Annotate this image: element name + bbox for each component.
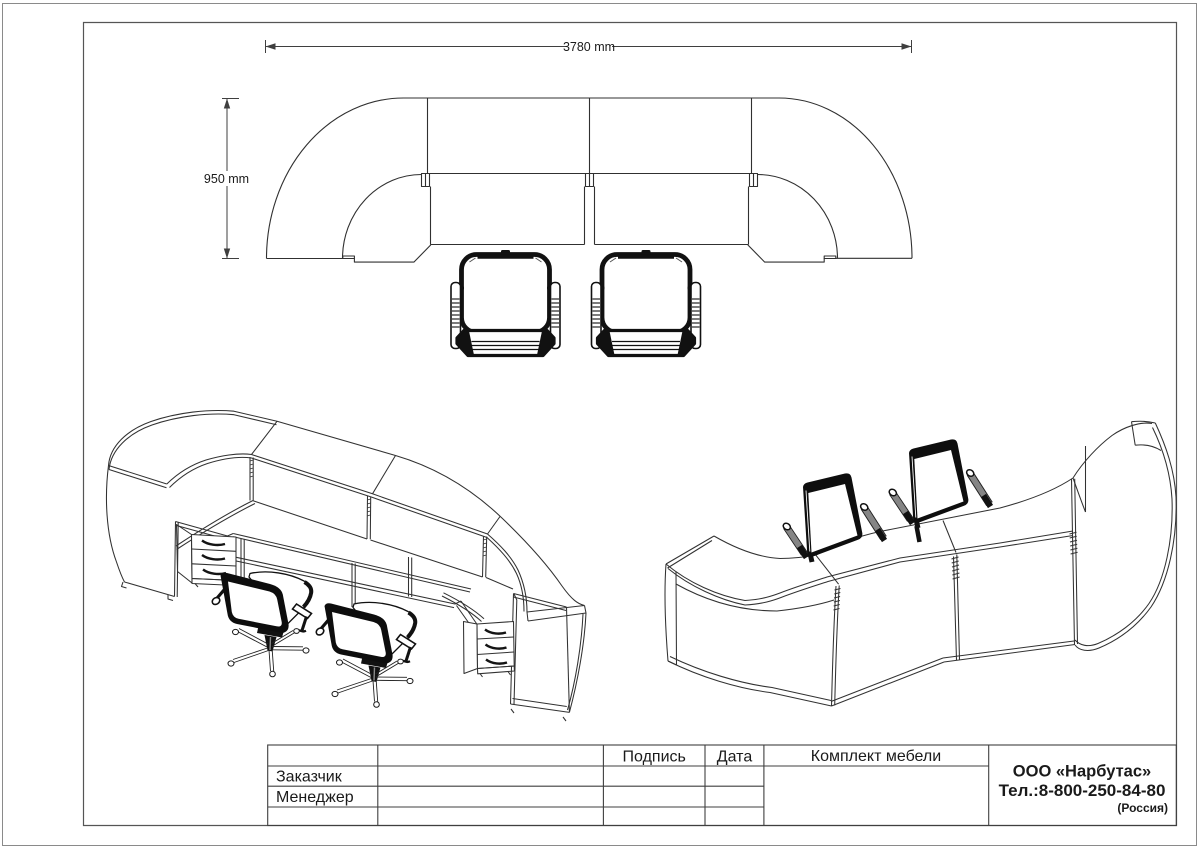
svg-text:Комплект мебели: Комплект мебели	[811, 748, 941, 765]
svg-text:(Россия): (Россия)	[1117, 801, 1168, 815]
svg-text:3780 mm: 3780 mm	[563, 40, 615, 54]
svg-text:Дата: Дата	[717, 749, 753, 766]
svg-text:Заказчик: Заказчик	[276, 769, 343, 786]
svg-text:950 mm: 950 mm	[204, 172, 249, 186]
svg-text:Тел.:8-800-250-84-80: Тел.:8-800-250-84-80	[999, 781, 1166, 800]
svg-text:Менеджер: Менеджер	[276, 789, 354, 806]
svg-text:ООО «Нарбутас»: ООО «Нарбутас»	[1013, 763, 1151, 781]
svg-text:Подпись: Подпись	[623, 749, 686, 766]
